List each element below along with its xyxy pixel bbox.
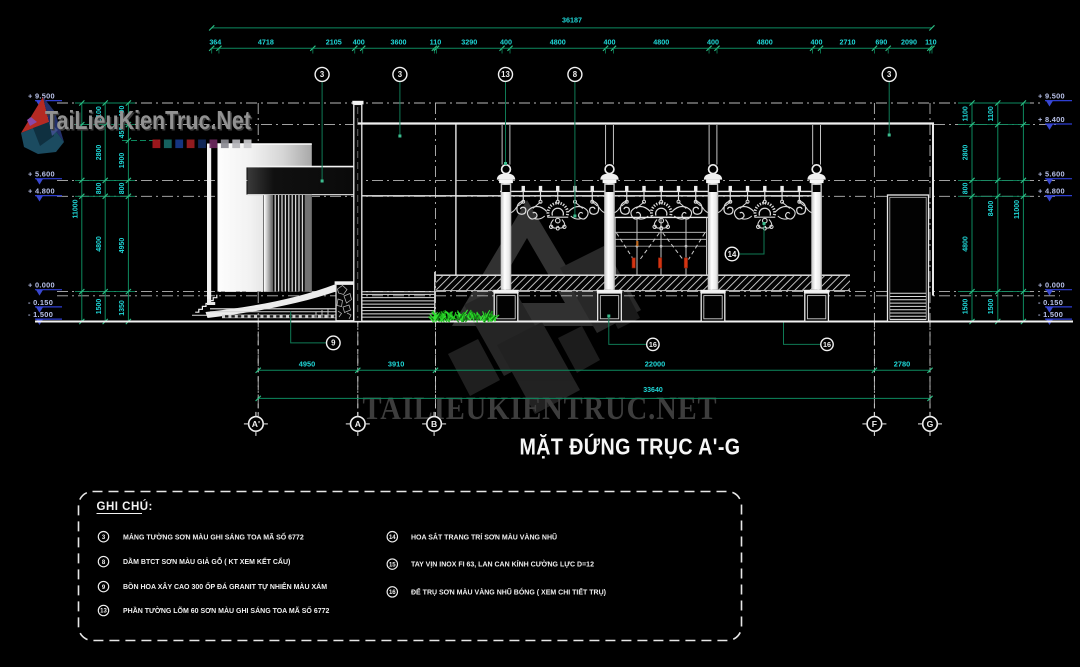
svg-text:1100: 1100	[962, 106, 969, 121]
svg-text:+ 9.500: + 9.500	[28, 92, 55, 101]
svg-text:2800: 2800	[962, 145, 969, 161]
svg-text:4718: 4718	[258, 38, 274, 47]
svg-text:GHI CHÚ:: GHI CHÚ:	[97, 500, 153, 513]
svg-text:A: A	[355, 419, 361, 429]
svg-text:+ 5.600: + 5.600	[28, 170, 55, 179]
svg-text:36187: 36187	[562, 16, 582, 25]
svg-text:400: 400	[500, 38, 512, 47]
svg-text:4950: 4950	[299, 360, 315, 369]
svg-text:2800: 2800	[96, 145, 103, 161]
svg-text:400: 400	[353, 38, 365, 47]
svg-text:TaiLieuKienTruc.Net: TaiLieuKienTruc.Net	[45, 105, 251, 135]
svg-text:TAILIEUKIENTRUC.NET: TAILIEUKIENTRUC.NET	[363, 391, 718, 427]
svg-text:2105: 2105	[326, 38, 342, 47]
svg-text:800: 800	[96, 182, 103, 194]
svg-text:15: 15	[389, 562, 396, 568]
svg-text:3290: 3290	[461, 38, 477, 47]
svg-text:4800: 4800	[757, 38, 773, 47]
svg-text:4800: 4800	[550, 38, 566, 47]
svg-text:- 1.500: - 1.500	[28, 310, 53, 319]
svg-text:690: 690	[875, 38, 887, 47]
svg-text:16: 16	[823, 340, 831, 349]
svg-text:F: F	[872, 419, 877, 429]
svg-text:1900: 1900	[119, 153, 126, 169]
svg-text:2090: 2090	[901, 38, 917, 47]
svg-text:14: 14	[728, 250, 737, 259]
svg-text:9: 9	[331, 339, 336, 348]
svg-text:+ 0.000: + 0.000	[28, 281, 55, 290]
svg-text:1500: 1500	[988, 299, 995, 315]
svg-text:TAY VỊN INOX FI 63, LAN CAN KÍ: TAY VỊN INOX FI 63, LAN CAN KÍNH CƯỜNG L…	[411, 560, 594, 569]
svg-text:+ 4.800: + 4.800	[28, 187, 55, 196]
svg-text:1100: 1100	[988, 106, 995, 121]
svg-text:8400: 8400	[988, 201, 995, 217]
svg-text:3600: 3600	[391, 38, 407, 47]
svg-text:HOA SẮT TRANG TRÍ SƠN MÀU VÀNG: HOA SẮT TRANG TRÍ SƠN MÀU VÀNG NHŨ	[411, 532, 557, 541]
svg-text:4800: 4800	[653, 38, 669, 47]
svg-text:+ 5.600: + 5.600	[1038, 170, 1065, 179]
svg-text:33640: 33640	[643, 387, 663, 394]
svg-text:3: 3	[887, 70, 892, 79]
svg-text:MẶT ĐỨNG TRỤC A'-G: MẶT ĐỨNG TRỤC A'-G	[520, 433, 741, 460]
svg-text:G: G	[927, 419, 934, 429]
svg-text:3: 3	[398, 70, 403, 79]
svg-text:- 0.150: - 0.150	[28, 298, 53, 307]
svg-text:3910: 3910	[388, 360, 404, 369]
svg-text:1350: 1350	[119, 300, 126, 316]
svg-text:16: 16	[389, 590, 396, 596]
svg-text:400: 400	[811, 38, 823, 47]
svg-text:B: B	[431, 419, 437, 429]
svg-text:11000: 11000	[73, 199, 80, 218]
svg-text:A': A'	[252, 419, 260, 429]
svg-text:110: 110	[430, 38, 442, 47]
svg-text:8: 8	[573, 70, 578, 79]
svg-text:16: 16	[649, 340, 657, 349]
svg-text:+ 0.000: + 0.000	[1038, 281, 1065, 290]
svg-text:400: 400	[604, 38, 616, 47]
svg-text:4800: 4800	[962, 236, 969, 252]
svg-text:+ 9.500: + 9.500	[1038, 92, 1065, 101]
svg-text:11000: 11000	[1014, 200, 1021, 219]
svg-text:+ 8.400: + 8.400	[1038, 115, 1065, 124]
svg-text:13: 13	[501, 70, 510, 79]
svg-text:400: 400	[707, 38, 719, 47]
svg-text:2780: 2780	[894, 360, 910, 369]
svg-text:2710: 2710	[839, 38, 855, 47]
svg-text:14: 14	[389, 535, 396, 541]
svg-text:3: 3	[320, 70, 325, 79]
svg-text:4800: 4800	[96, 236, 103, 252]
svg-text:- 1.500: - 1.500	[1038, 310, 1063, 319]
svg-text:- 0.150: - 0.150	[1038, 298, 1063, 307]
svg-text:13: 13	[100, 609, 107, 615]
svg-text:800: 800	[119, 182, 126, 194]
svg-text:4950: 4950	[119, 238, 126, 254]
svg-text:364: 364	[209, 38, 221, 47]
svg-text:110: 110	[925, 38, 937, 47]
svg-text:1500: 1500	[96, 299, 103, 315]
svg-text:22000: 22000	[645, 360, 666, 369]
svg-text:+ 4.800: + 4.800	[1038, 187, 1065, 196]
svg-text:800: 800	[962, 182, 969, 194]
svg-text:1500: 1500	[962, 299, 969, 315]
